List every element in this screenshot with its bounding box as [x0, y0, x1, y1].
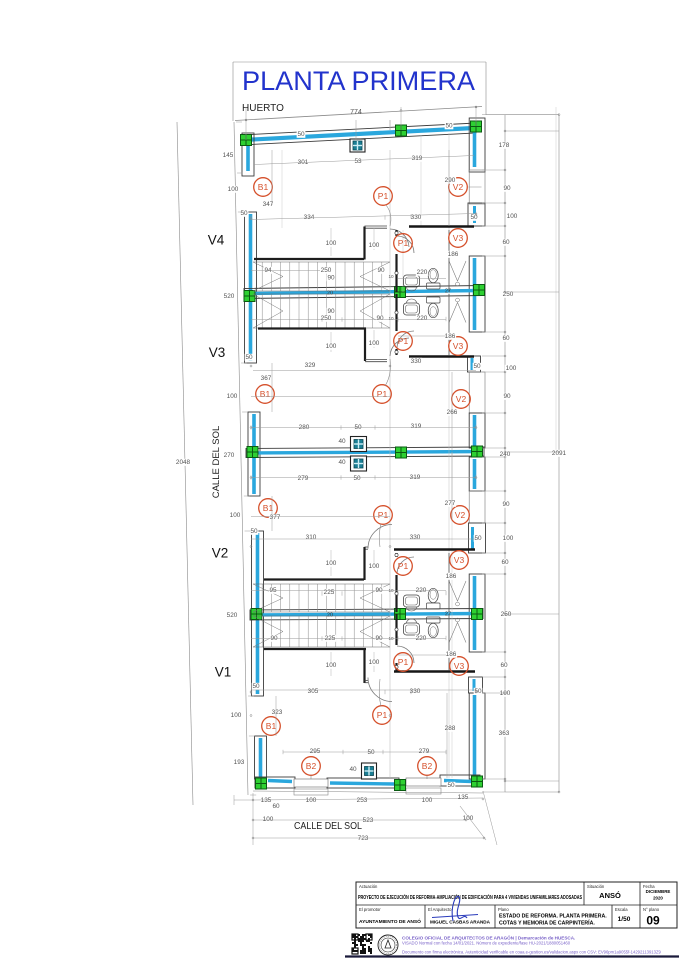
svg-text:B1: B1: [266, 721, 277, 731]
svg-text:P1: P1: [398, 336, 409, 346]
svg-text:330: 330: [410, 688, 421, 695]
svg-text:40: 40: [338, 438, 346, 445]
svg-text:60: 60: [502, 335, 510, 342]
svg-text:100: 100: [263, 816, 274, 823]
svg-text:CALLE DEL SOL: CALLE DEL SOL: [294, 820, 362, 832]
svg-text:50: 50: [470, 214, 478, 221]
svg-text:50: 50: [474, 535, 482, 542]
svg-text:Documento con firma electrónic: Documento con firma electrónica. Autenti…: [402, 950, 662, 955]
svg-text:27: 27: [445, 289, 451, 295]
svg-text:P1: P1: [378, 510, 389, 520]
svg-text:V4: V4: [208, 233, 225, 248]
svg-text:P1: P1: [377, 710, 388, 720]
svg-text:253: 253: [357, 797, 368, 804]
svg-text:VISADO Normal con fecha 14/01/: VISADO Normal con fecha 14/01/2021. Núme…: [402, 941, 571, 946]
svg-text:250: 250: [321, 315, 332, 322]
svg-text:100: 100: [500, 690, 511, 697]
svg-text:CALLE DEL SOL: CALLE DEL SOL: [211, 426, 222, 499]
svg-text:N° plano: N° plano: [643, 907, 660, 912]
svg-text:50: 50: [252, 683, 260, 690]
svg-text:90: 90: [502, 501, 510, 508]
svg-text:723: 723: [358, 835, 369, 842]
svg-text:10: 10: [388, 316, 394, 321]
svg-text:2020: 2020: [653, 896, 663, 901]
svg-text:90: 90: [377, 267, 385, 274]
svg-text:50: 50: [445, 123, 453, 130]
svg-text:329: 329: [305, 362, 316, 369]
svg-text:60: 60: [272, 803, 280, 810]
svg-text:50: 50: [474, 688, 482, 695]
svg-text:B2: B2: [306, 761, 317, 771]
svg-text:50: 50: [240, 210, 248, 217]
svg-text:330: 330: [411, 358, 422, 365]
svg-text:774: 774: [350, 109, 362, 116]
svg-text:100: 100: [503, 535, 514, 542]
svg-text:100: 100: [306, 797, 317, 804]
svg-text:COTAS Y MEMORIA DE CARPINTERÍA: COTAS Y MEMORIA DE CARPINTERÍA.: [499, 919, 595, 927]
svg-text:100: 100: [506, 365, 517, 372]
svg-text:50: 50: [447, 782, 455, 789]
svg-text:Plano: Plano: [498, 907, 509, 912]
svg-text:2091: 2091: [552, 450, 567, 457]
svg-text:P1: P1: [398, 238, 409, 248]
svg-text:520: 520: [224, 293, 235, 300]
svg-text:60: 60: [500, 662, 508, 669]
svg-text:178: 178: [499, 142, 510, 149]
svg-text:PROYECTO DE EJECUCIÓN DE REFOR: PROYECTO DE EJECUCIÓN DE REFORMA-AMPLIAC…: [358, 893, 582, 901]
svg-text:100: 100: [326, 560, 337, 567]
svg-text:90: 90: [503, 185, 511, 192]
svg-text:1/50: 1/50: [618, 916, 631, 923]
svg-text:V3: V3: [453, 233, 464, 243]
svg-text:B1: B1: [258, 182, 269, 192]
svg-text:100: 100: [463, 815, 474, 822]
svg-text:290: 290: [445, 177, 456, 184]
svg-text:V2: V2: [455, 510, 466, 520]
svg-text:60: 60: [502, 239, 510, 246]
svg-text:V3: V3: [454, 661, 465, 671]
svg-text:P1: P1: [378, 191, 389, 201]
svg-text:319: 319: [411, 423, 422, 430]
svg-text:279: 279: [419, 748, 430, 755]
svg-text:100: 100: [326, 343, 337, 350]
svg-text:250: 250: [321, 267, 332, 274]
svg-text:V3: V3: [209, 345, 226, 360]
svg-text:220: 220: [417, 269, 428, 276]
svg-text:60: 60: [501, 559, 509, 566]
svg-text:90: 90: [327, 308, 335, 315]
svg-text:363: 363: [499, 730, 510, 737]
svg-text:Escala: Escala: [615, 907, 628, 912]
svg-text:10: 10: [388, 274, 394, 279]
svg-text:ESTADO DE REFORMA. PLANTA PRIM: ESTADO DE REFORMA. PLANTA PRIMERA.: [499, 914, 607, 920]
svg-text:100: 100: [227, 393, 238, 400]
svg-text:100: 100: [369, 242, 380, 249]
svg-text:323: 323: [272, 709, 283, 716]
svg-text:145: 145: [223, 152, 234, 159]
svg-text:B2: B2: [422, 761, 433, 771]
svg-text:B1: B1: [260, 389, 271, 399]
svg-text:295: 295: [310, 748, 321, 755]
svg-text:50: 50: [353, 475, 361, 482]
svg-text:270: 270: [224, 452, 235, 459]
svg-text:V2: V2: [212, 546, 229, 561]
svg-text:100: 100: [231, 712, 242, 719]
svg-text:P1: P1: [377, 389, 388, 399]
svg-text:377: 377: [270, 514, 281, 521]
svg-text:V2: V2: [456, 394, 467, 404]
svg-text:523: 523: [363, 817, 374, 824]
svg-text:09: 09: [646, 914, 660, 928]
svg-text:40: 40: [338, 459, 346, 466]
svg-text:20: 20: [327, 291, 333, 297]
svg-text:HUERTO: HUERTO: [242, 103, 284, 114]
svg-text:V3: V3: [453, 341, 464, 351]
svg-text:520: 520: [227, 612, 238, 619]
svg-text:193: 193: [234, 759, 245, 766]
svg-text:186: 186: [446, 651, 457, 658]
svg-text:319: 319: [412, 155, 423, 162]
svg-text:250: 250: [501, 611, 512, 618]
svg-text:COLEGIO OFICIAL DE ARQUITECTOS: COLEGIO OFICIAL DE ARQUITECTOS DE ARAGÓN…: [402, 934, 575, 941]
svg-text:DICIEMBRE: DICIEMBRE: [646, 889, 671, 894]
svg-text:310: 310: [306, 534, 317, 541]
svg-text:100: 100: [369, 563, 380, 570]
svg-text:220: 220: [417, 315, 428, 322]
svg-text:El promotor: El promotor: [359, 907, 381, 912]
svg-text:100: 100: [228, 186, 239, 193]
svg-text:MIGUEL CASBAS ARANDA: MIGUEL CASBAS ARANDA: [430, 920, 491, 925]
svg-text:50: 50: [250, 528, 258, 535]
svg-text:Actuación: Actuación: [359, 884, 378, 889]
svg-text:277: 277: [445, 500, 456, 507]
svg-text:305: 305: [308, 688, 319, 695]
svg-text:90: 90: [503, 393, 511, 400]
svg-text:50: 50: [367, 749, 375, 756]
svg-text:100: 100: [369, 340, 380, 347]
svg-text:2048: 2048: [176, 459, 191, 466]
svg-text:ANSÓ: ANSÓ: [599, 891, 621, 900]
svg-text:50: 50: [297, 131, 305, 138]
svg-text:V3: V3: [454, 555, 465, 565]
svg-text:Situación: Situación: [587, 884, 605, 889]
svg-text:53: 53: [354, 158, 362, 165]
svg-text:186: 186: [445, 333, 456, 340]
svg-text:367: 367: [261, 375, 272, 382]
svg-text:90: 90: [376, 315, 384, 322]
svg-text:50: 50: [245, 354, 253, 361]
svg-text:135: 135: [261, 797, 272, 804]
svg-text:AYUNTAMIENTO DE ANSÓ: AYUNTAMIENTO DE ANSÓ: [359, 917, 421, 924]
svg-text:279: 279: [298, 475, 309, 482]
svg-text:100: 100: [326, 662, 337, 669]
svg-text:288: 288: [445, 725, 456, 732]
svg-text:27: 27: [445, 612, 451, 618]
svg-text:186: 186: [446, 573, 457, 580]
svg-text:100: 100: [369, 659, 380, 666]
svg-text:100: 100: [507, 213, 518, 220]
svg-text:50: 50: [473, 363, 481, 370]
svg-text:P1: P1: [398, 561, 409, 571]
svg-text:90: 90: [327, 275, 335, 282]
svg-text:40: 40: [349, 766, 357, 773]
svg-text:El Arquitecto: El Arquitecto: [428, 907, 452, 912]
svg-text:186: 186: [448, 251, 459, 258]
svg-text:20: 20: [327, 613, 333, 619]
svg-text:PLANTA PRIMERA: PLANTA PRIMERA: [242, 66, 475, 96]
svg-text:P1: P1: [398, 657, 409, 667]
svg-text:V1: V1: [215, 665, 232, 680]
svg-text:135: 135: [458, 794, 469, 801]
svg-text:100: 100: [230, 512, 241, 519]
svg-text:330: 330: [410, 534, 421, 541]
svg-text:100: 100: [326, 240, 337, 247]
